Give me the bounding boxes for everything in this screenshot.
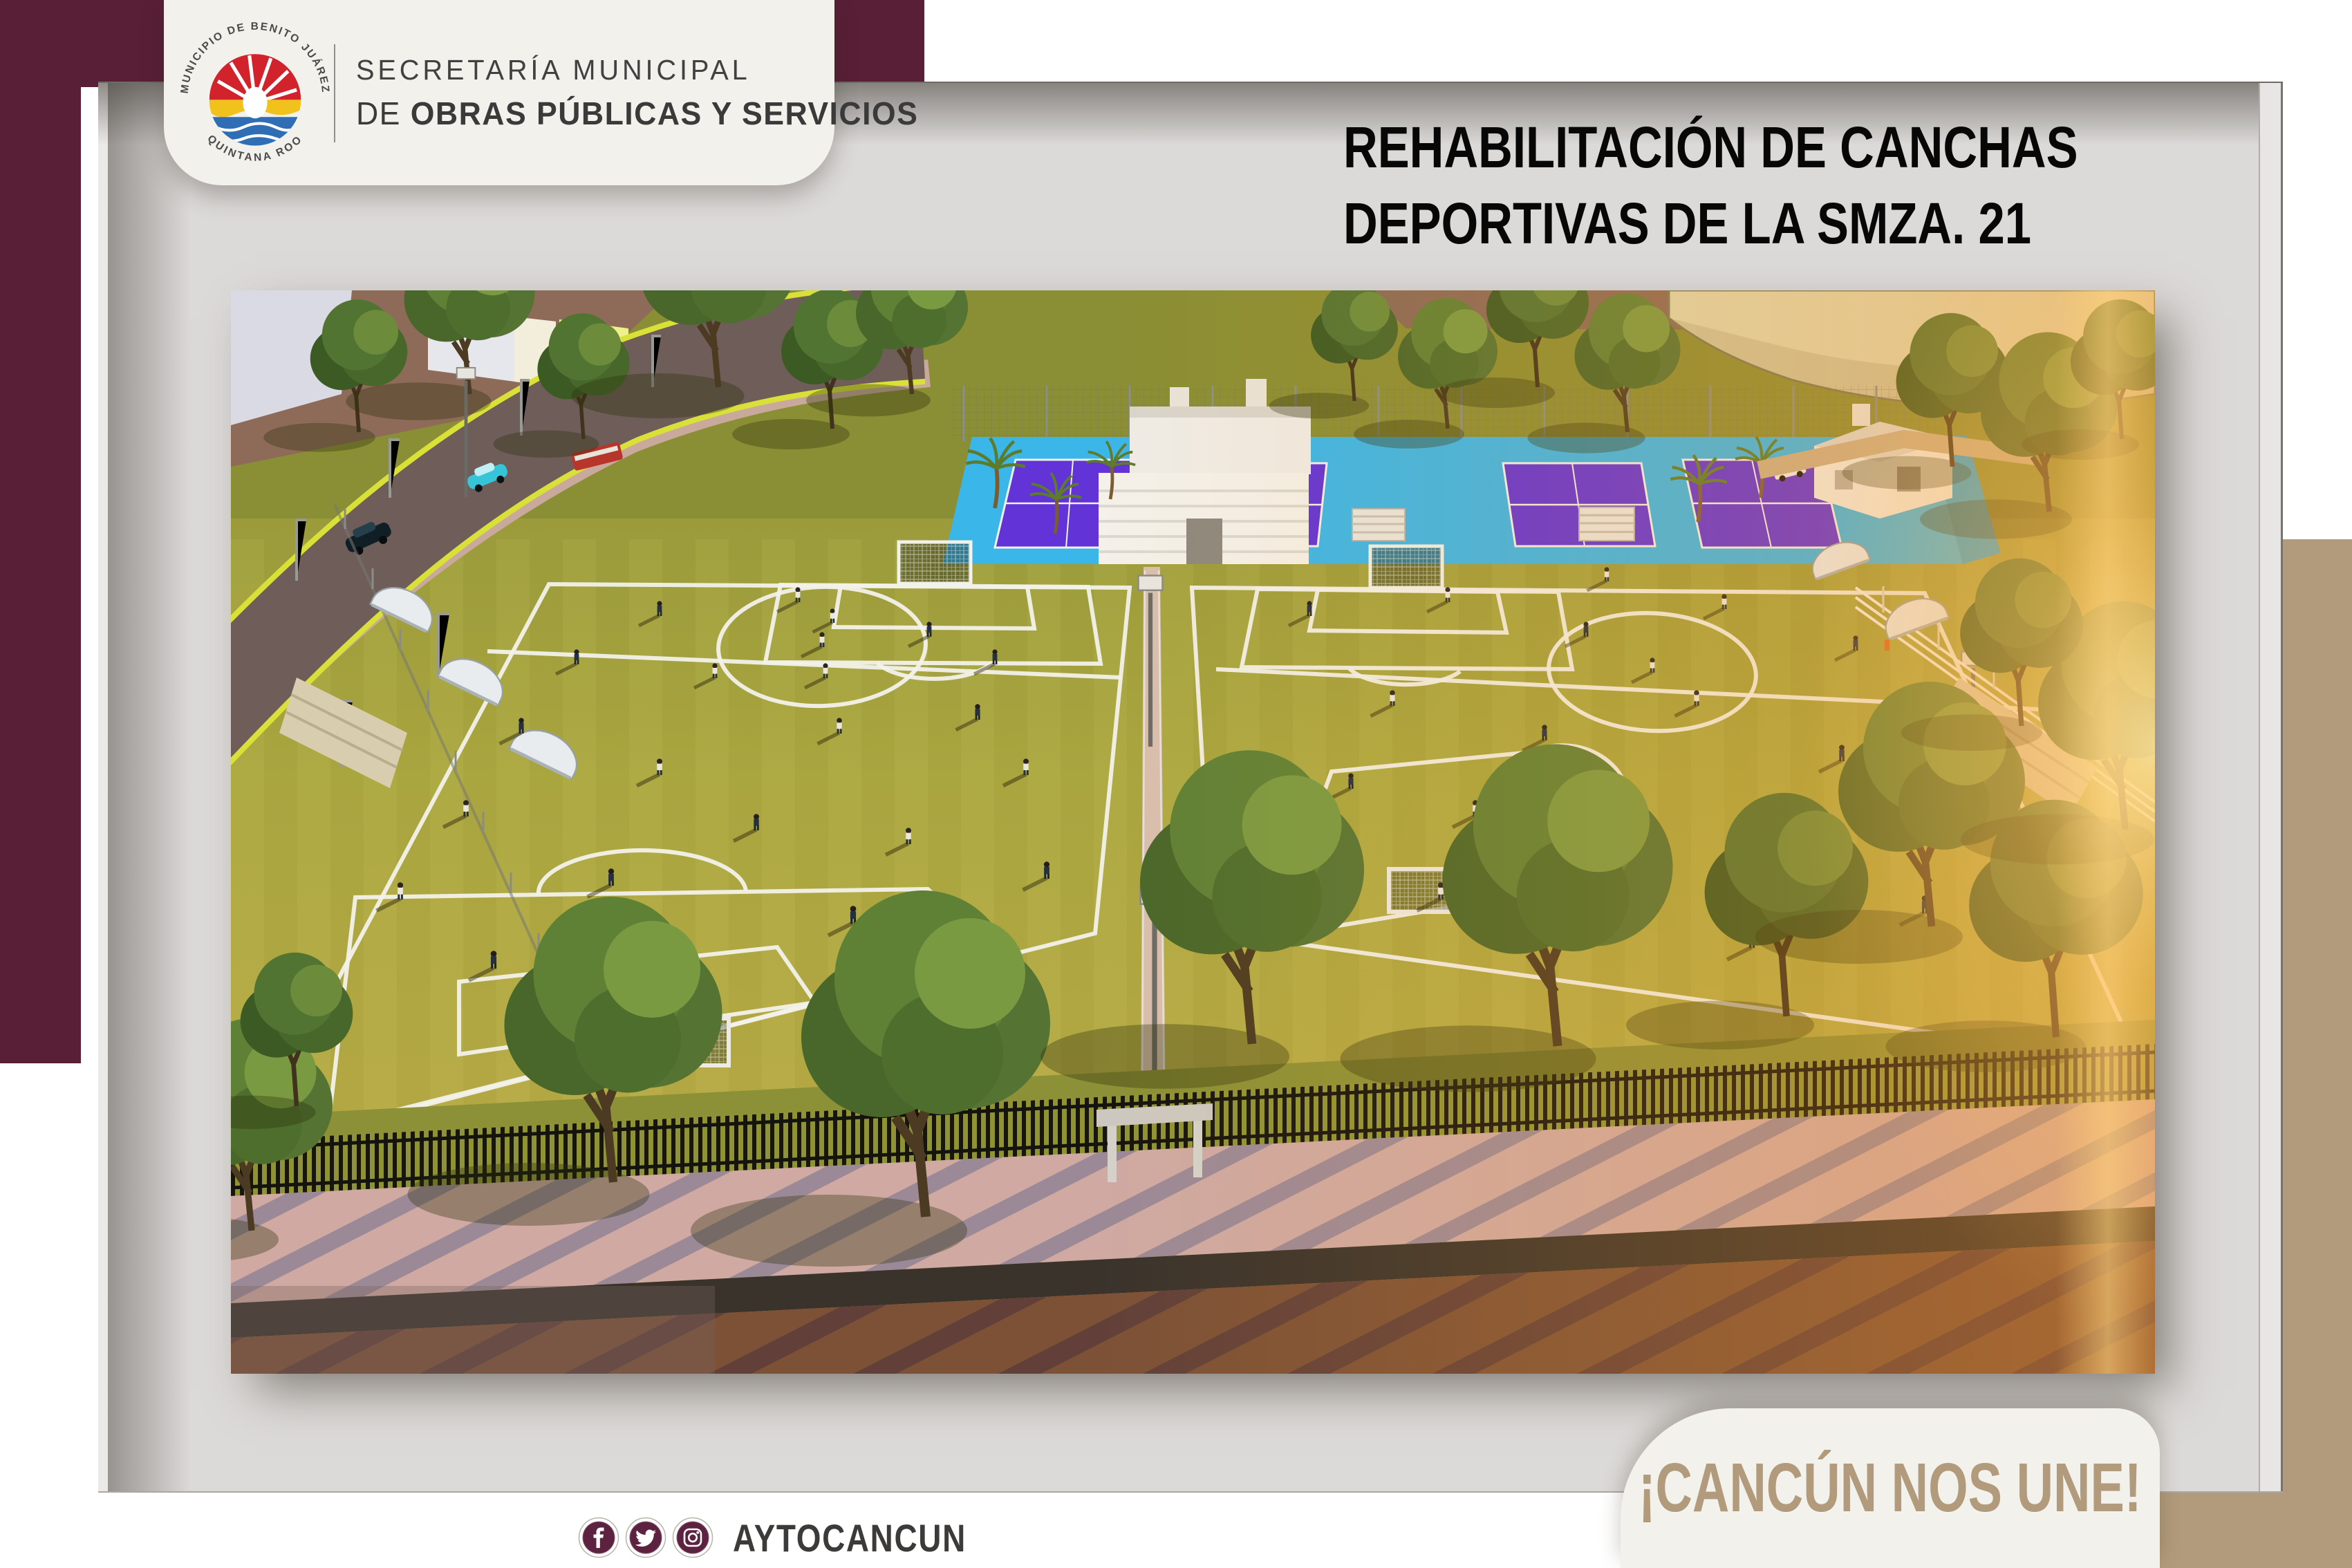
render-scene xyxy=(231,290,2155,1374)
social-handle: AYTOCANCUN xyxy=(733,1515,967,1560)
logo-emblem xyxy=(209,54,301,147)
slogan-text: ¡CANCÚN NOS UNE! xyxy=(1639,1448,2142,1528)
municipio-logo: MUNICIPIO DE BENITO JUÁREZ QUINTANA ROO xyxy=(175,12,335,173)
slogan-card: ¡CANCÚN NOS UNE! xyxy=(1621,1408,2160,1568)
panel-edge-left xyxy=(98,83,108,1491)
project-title: REHABILITACIÓN DE CANCHAS DEPORTIVAS DE … xyxy=(1343,109,2148,261)
maroon-left-band xyxy=(0,0,81,1063)
facebook-icon[interactable] xyxy=(578,1517,619,1558)
secretaria-line2-prefix: DE xyxy=(356,95,411,131)
secretaria-line2-bold: OBRAS PÚBLICAS Y SERVICIOS xyxy=(411,95,919,131)
secretaria-header-card: MUNICIPIO DE BENITO JUÁREZ QUINTANA ROO xyxy=(164,0,834,185)
twitter-icon[interactable] xyxy=(625,1517,666,1558)
project-title-line2: DEPORTIVAS DE LA SMZA. 21 xyxy=(1343,185,2148,261)
slide-canvas: MUNICIPIO DE BENITO JUÁREZ QUINTANA ROO xyxy=(0,0,2352,1568)
secretaria-line1: SECRETARÍA MUNICIPAL xyxy=(356,54,812,86)
header-divider xyxy=(334,44,335,142)
panel-edge-right xyxy=(2259,83,2283,1491)
panel-shadow-left xyxy=(108,83,191,1491)
secretaria-line2: DE OBRAS PÚBLICAS Y SERVICIOS xyxy=(356,95,812,132)
footer-social-bar: AYTOCANCUN xyxy=(578,1515,1018,1560)
sun-glow xyxy=(1510,290,2155,1374)
instagram-icon[interactable] xyxy=(672,1517,713,1558)
project-render-image xyxy=(231,290,2155,1374)
project-title-line1: REHABILITACIÓN DE CANCHAS xyxy=(1343,109,2148,185)
